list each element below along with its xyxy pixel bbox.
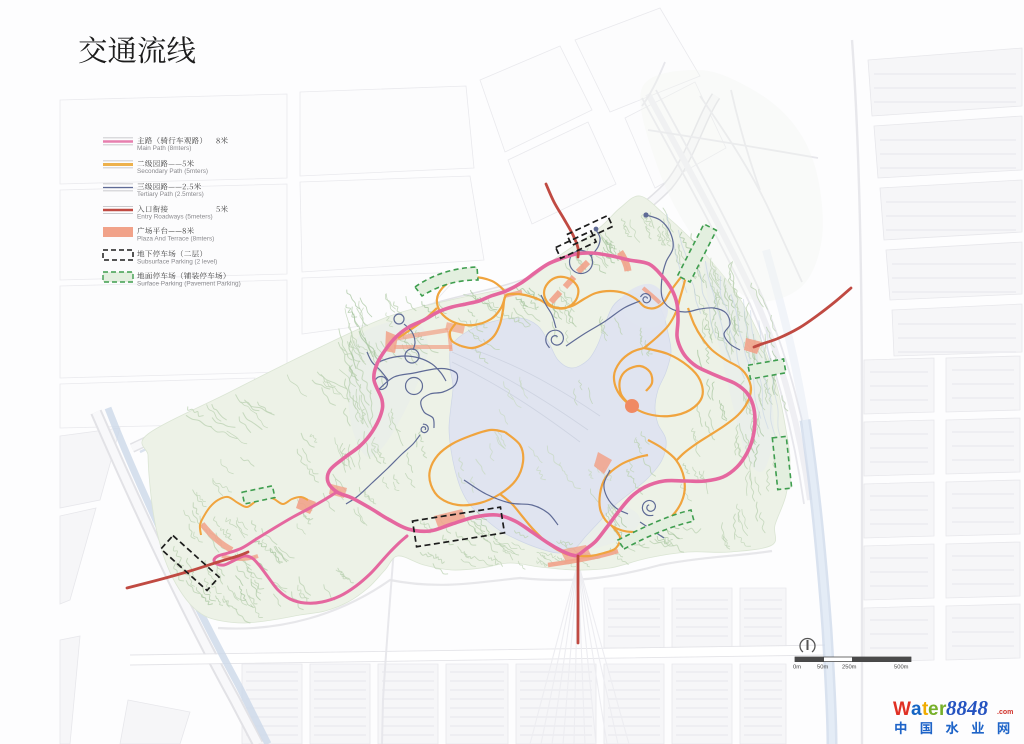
svg-text:.com: .com [997, 709, 1013, 716]
svg-text:a: a [911, 699, 922, 720]
svg-text:Secondary Path (5mters): Secondary Path (5mters) [137, 168, 208, 175]
svg-text:Main Path (8mters): Main Path (8mters) [137, 145, 191, 152]
svg-text:500m: 500m [894, 665, 909, 671]
svg-text:250m: 250m [842, 665, 857, 671]
svg-text:Entry Roadways (5meters): Entry Roadways (5meters) [137, 214, 213, 221]
svg-text:Plaza And Terrace (8mters): Plaza And Terrace (8mters) [137, 236, 214, 243]
svg-text:e: e [928, 699, 939, 720]
svg-text:50m: 50m [817, 665, 828, 671]
svg-text:Surface Parking (Pavement Park: Surface Parking (Pavement Parking) [137, 281, 241, 288]
svg-text:Subsurface Parking (2 level): Subsurface Parking (2 level) [137, 259, 217, 266]
svg-text:0m: 0m [793, 665, 801, 671]
svg-text:W: W [893, 699, 911, 720]
svg-text:Tertiary Path (2.5mters): Tertiary Path (2.5mters) [137, 191, 204, 198]
svg-text:8848: 8848 [946, 696, 989, 720]
